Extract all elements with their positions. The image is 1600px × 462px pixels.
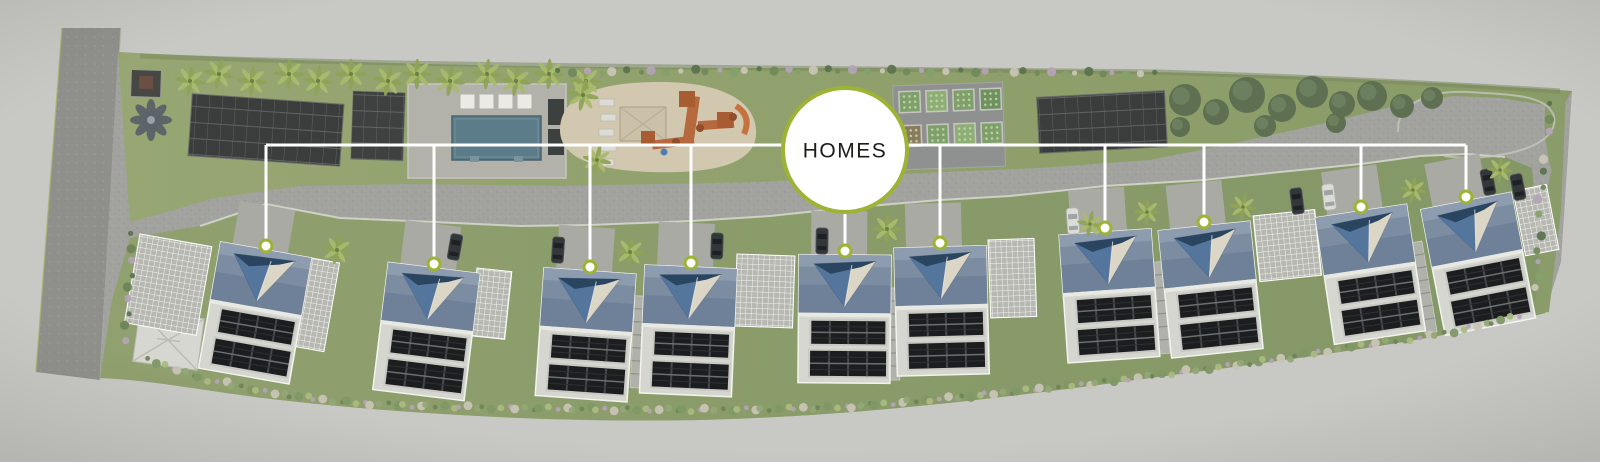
- pergola-lattice: [124, 234, 212, 335]
- tree: [1170, 117, 1190, 137]
- home-8-marker[interactable]: [1198, 216, 1210, 228]
- home-6-marker[interactable]: [934, 237, 946, 249]
- shade-flower-structure: [130, 99, 172, 141]
- bench: [599, 99, 614, 106]
- cabana: [460, 94, 475, 109]
- tree: [1329, 91, 1355, 117]
- maintenance-building: [131, 69, 162, 97]
- pergola-lattice: [1253, 210, 1322, 282]
- parked-car: [711, 233, 724, 259]
- pergola-lattice: [734, 254, 794, 328]
- tree: [1254, 115, 1276, 137]
- home-1-marker[interactable]: [260, 240, 272, 252]
- tree: [1203, 99, 1229, 125]
- home-10-marker[interactable]: [1460, 191, 1472, 203]
- site-plan-figure: HOMES: [0, 0, 1600, 462]
- homes-label: HOMES: [803, 140, 888, 163]
- home-4-marker[interactable]: [685, 257, 697, 269]
- tree: [1296, 76, 1328, 108]
- pergola-lattice: [988, 238, 1037, 318]
- solar-canopy-court: [351, 91, 405, 161]
- bench: [599, 129, 614, 136]
- driveway: [1166, 180, 1227, 232]
- pool-area: [408, 84, 566, 178]
- cabana: [517, 94, 532, 109]
- home-5-marker[interactable]: [839, 245, 851, 257]
- bench: [601, 114, 616, 121]
- parked-car: [551, 237, 565, 264]
- tree: [1169, 84, 1201, 116]
- tree: [1390, 94, 1414, 118]
- cabana: [498, 94, 513, 109]
- home-7-marker[interactable]: [1099, 222, 1111, 234]
- home-3-marker[interactable]: [584, 261, 596, 273]
- cabana: [479, 94, 494, 109]
- tree: [1421, 87, 1443, 109]
- tree: [1357, 81, 1387, 111]
- parked-car: [816, 228, 828, 254]
- home-9-marker[interactable]: [1355, 201, 1367, 213]
- pool: [452, 116, 541, 160]
- tree: [1326, 113, 1346, 133]
- homes-callout[interactable]: HOMES: [783, 88, 907, 212]
- palm-tree: [402, 59, 433, 90]
- home-2-marker[interactable]: [428, 258, 440, 270]
- palm-tree: [336, 59, 366, 89]
- tree: [1229, 77, 1265, 113]
- community-garden: [893, 82, 1006, 170]
